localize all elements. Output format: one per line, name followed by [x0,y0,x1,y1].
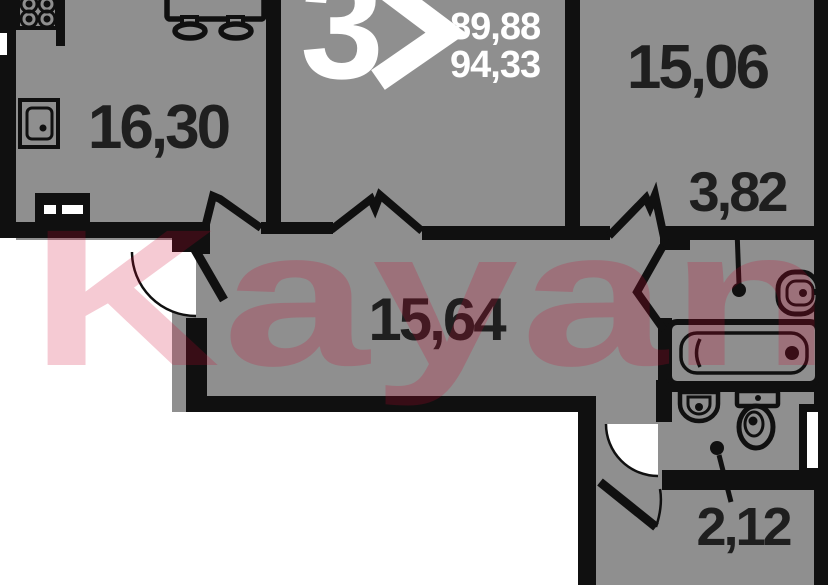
badge-room-count: 3 [300,0,383,110]
floor-plan-svg: 16,30 15,06 3,82 15,64 2,12 3 89,88 94,3… [0,0,828,585]
kitchen-sink-icon [20,100,58,147]
room-area-label-kitchen: 16,30 [88,93,229,162]
wall-wc-bottom [662,470,814,490]
badge-area-living: 94,33 [450,44,540,86]
stove-icon [18,0,57,28]
floor-plan-canvas: 16,30 15,06 3,82 15,64 2,12 3 89,88 94,3… [0,0,828,585]
wall-lobby-right [578,408,596,585]
window-notch [0,33,7,55]
watermark-text: Kayan [30,189,828,407]
badge-area-total: 89,88 [450,6,540,48]
shaft-frame-left [799,404,807,476]
room-area-label-bedroom: 15,06 [627,33,769,102]
shaft-niche [807,412,818,468]
room-area-label-wc: 2,12 [696,497,790,557]
